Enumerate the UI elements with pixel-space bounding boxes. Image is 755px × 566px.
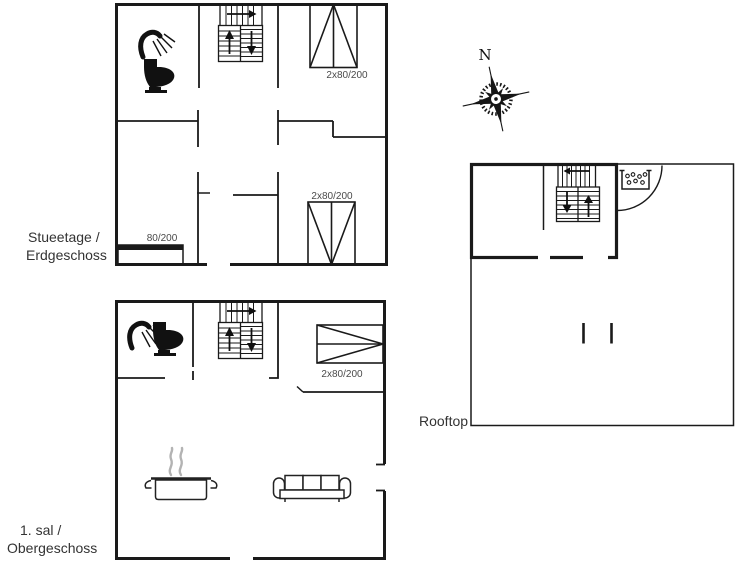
bed-dimension-label: 80/200	[147, 233, 178, 244]
stairs-icon	[219, 5, 263, 62]
rooftop-plan	[471, 164, 734, 426]
bed-dimension-label: 2x80/200	[326, 70, 368, 81]
single-bed-icon	[118, 245, 183, 265]
steam-icon	[180, 448, 182, 475]
double-bed-icon	[308, 202, 355, 265]
door-opening	[230, 555, 253, 562]
rooftop-label: Rooftop	[419, 413, 468, 429]
grill-icon	[620, 171, 652, 190]
bed-dimension-label: 2x80/200	[321, 369, 363, 380]
ground-floor-label-line1: Stueetage /	[28, 229, 100, 245]
sofa-icon	[274, 476, 351, 503]
ground-floor-plan: 2x80/200 2x80/200 80/200	[116, 5, 387, 269]
rooftop-walls	[471, 164, 734, 426]
double-bed-icon	[310, 5, 357, 68]
compass-rose-icon	[456, 60, 536, 139]
entrance-door-opening	[207, 261, 230, 268]
north-label: N	[478, 46, 491, 64]
first-floor-label-line2: Obergeschoss	[7, 540, 97, 556]
stairs-icon	[557, 166, 600, 222]
balcony-door-opening	[381, 464, 389, 491]
shower-icon	[141, 32, 175, 57]
toilet-icon	[153, 322, 183, 356]
steam-icon	[170, 448, 172, 475]
railing-marks	[584, 323, 612, 344]
first-floor-label-line1: 1. sal /	[20, 522, 61, 538]
door-opening	[538, 254, 550, 262]
first-floor-plan: 2x80/200	[116, 302, 389, 563]
door-opening	[583, 254, 608, 262]
ground-floor-label-line2: Erdgeschoss	[26, 247, 107, 263]
door-swing-arc	[617, 166, 662, 211]
toilet-icon	[144, 59, 174, 93]
cooking-pot-icon	[145, 448, 217, 500]
floorplan-page: 2x80/200 2x80/200 80/200 Stueetage / Erd…	[0, 0, 755, 566]
floorplan-diagram: 2x80/200 2x80/200 80/200 Stueetage / Erd…	[0, 0, 755, 566]
bed-dimension-label: 2x80/200	[311, 191, 353, 202]
double-bed-icon	[317, 325, 383, 363]
stairs-icon	[219, 302, 263, 359]
